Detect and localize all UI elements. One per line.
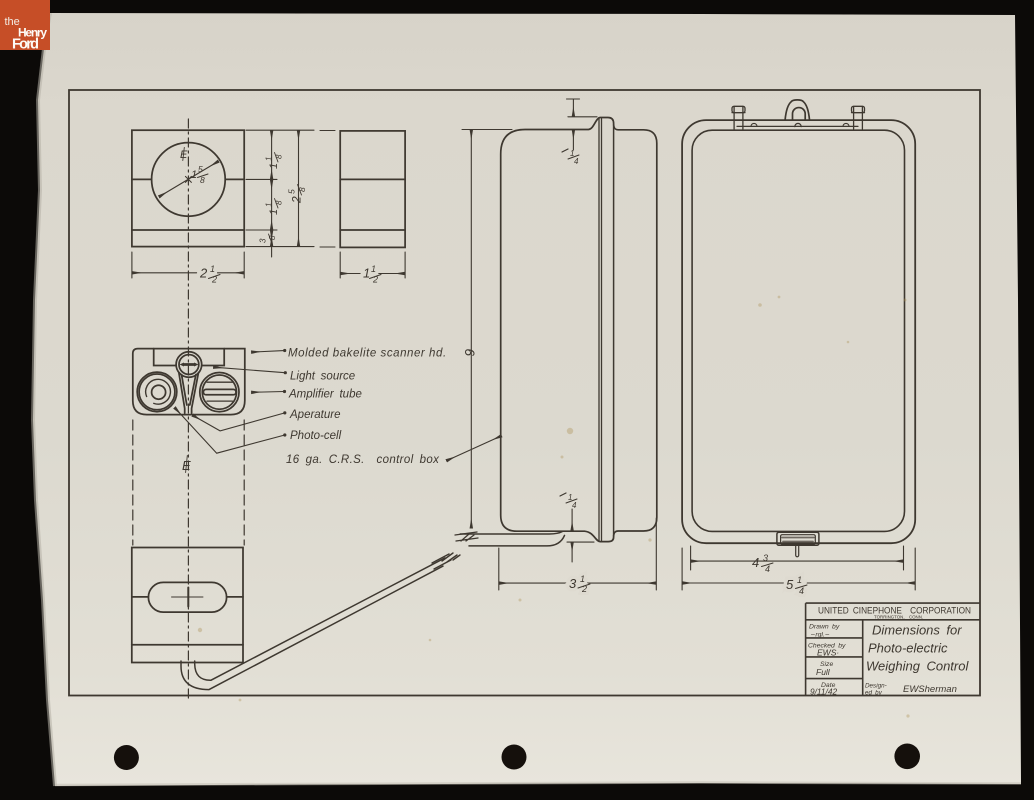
svg-text:1: 1 (371, 264, 376, 274)
svg-text:Weighing Control: Weighing Control (866, 659, 969, 674)
svg-text:ed by: ed by (865, 690, 883, 697)
svg-text:Design-: Design- (865, 683, 887, 690)
svg-text:Light source: Light source (290, 371, 355, 383)
svg-text:2: 2 (290, 196, 304, 204)
svg-text:Dimensions for: Dimensions for (872, 623, 962, 638)
svg-text:4: 4 (752, 555, 759, 570)
svg-text:1: 1 (268, 163, 280, 169)
svg-text:2: 2 (199, 266, 208, 281)
svg-text:1: 1 (797, 575, 802, 585)
svg-text:5: 5 (287, 189, 297, 194)
svg-text:5: 5 (786, 577, 794, 592)
svg-text:16 ga. C.R.S. control box: 16 ga. C.R.S. control box (286, 454, 440, 466)
svg-text:Drawn by: Drawn by (809, 624, 840, 631)
svg-text:Ford: Ford (12, 37, 39, 53)
svg-text:1: 1 (210, 264, 215, 274)
svg-text:9/11/42: 9/11/42 (810, 686, 837, 696)
svg-text:Full: Full (816, 667, 831, 677)
svg-text:1: 1 (268, 209, 280, 215)
svg-text:Molded bakelite scanner hd.: Molded bakelite scanner hd. (288, 348, 447, 360)
svg-text:1: 1 (191, 169, 197, 181)
svg-text:Photo-cell: Photo-cell (290, 430, 342, 442)
svg-text:Amplifier tube: Amplifier tube (288, 389, 362, 401)
svg-text:3: 3 (259, 238, 268, 243)
svg-text:4: 4 (572, 501, 577, 510)
svg-text:1: 1 (580, 574, 585, 584)
svg-text:1: 1 (265, 203, 274, 207)
svg-text:Photo-electric: Photo-electric (868, 641, 948, 656)
svg-text:9: 9 (463, 349, 478, 357)
svg-text:3: 3 (763, 553, 768, 563)
svg-text:5: 5 (198, 164, 203, 174)
svg-text:EWSherman: EWSherman (903, 684, 957, 695)
svg-text:3: 3 (569, 576, 577, 591)
svg-text:TORRINGTON, CONN.: TORRINGTON, CONN. (874, 614, 923, 619)
svg-text:1: 1 (265, 157, 274, 161)
svg-text:4: 4 (574, 157, 579, 166)
svg-text:Aperature: Aperature (289, 409, 341, 421)
svg-text:– rql. –: – rql. – (810, 631, 829, 638)
svg-text:EWS·: EWS· (817, 648, 839, 658)
